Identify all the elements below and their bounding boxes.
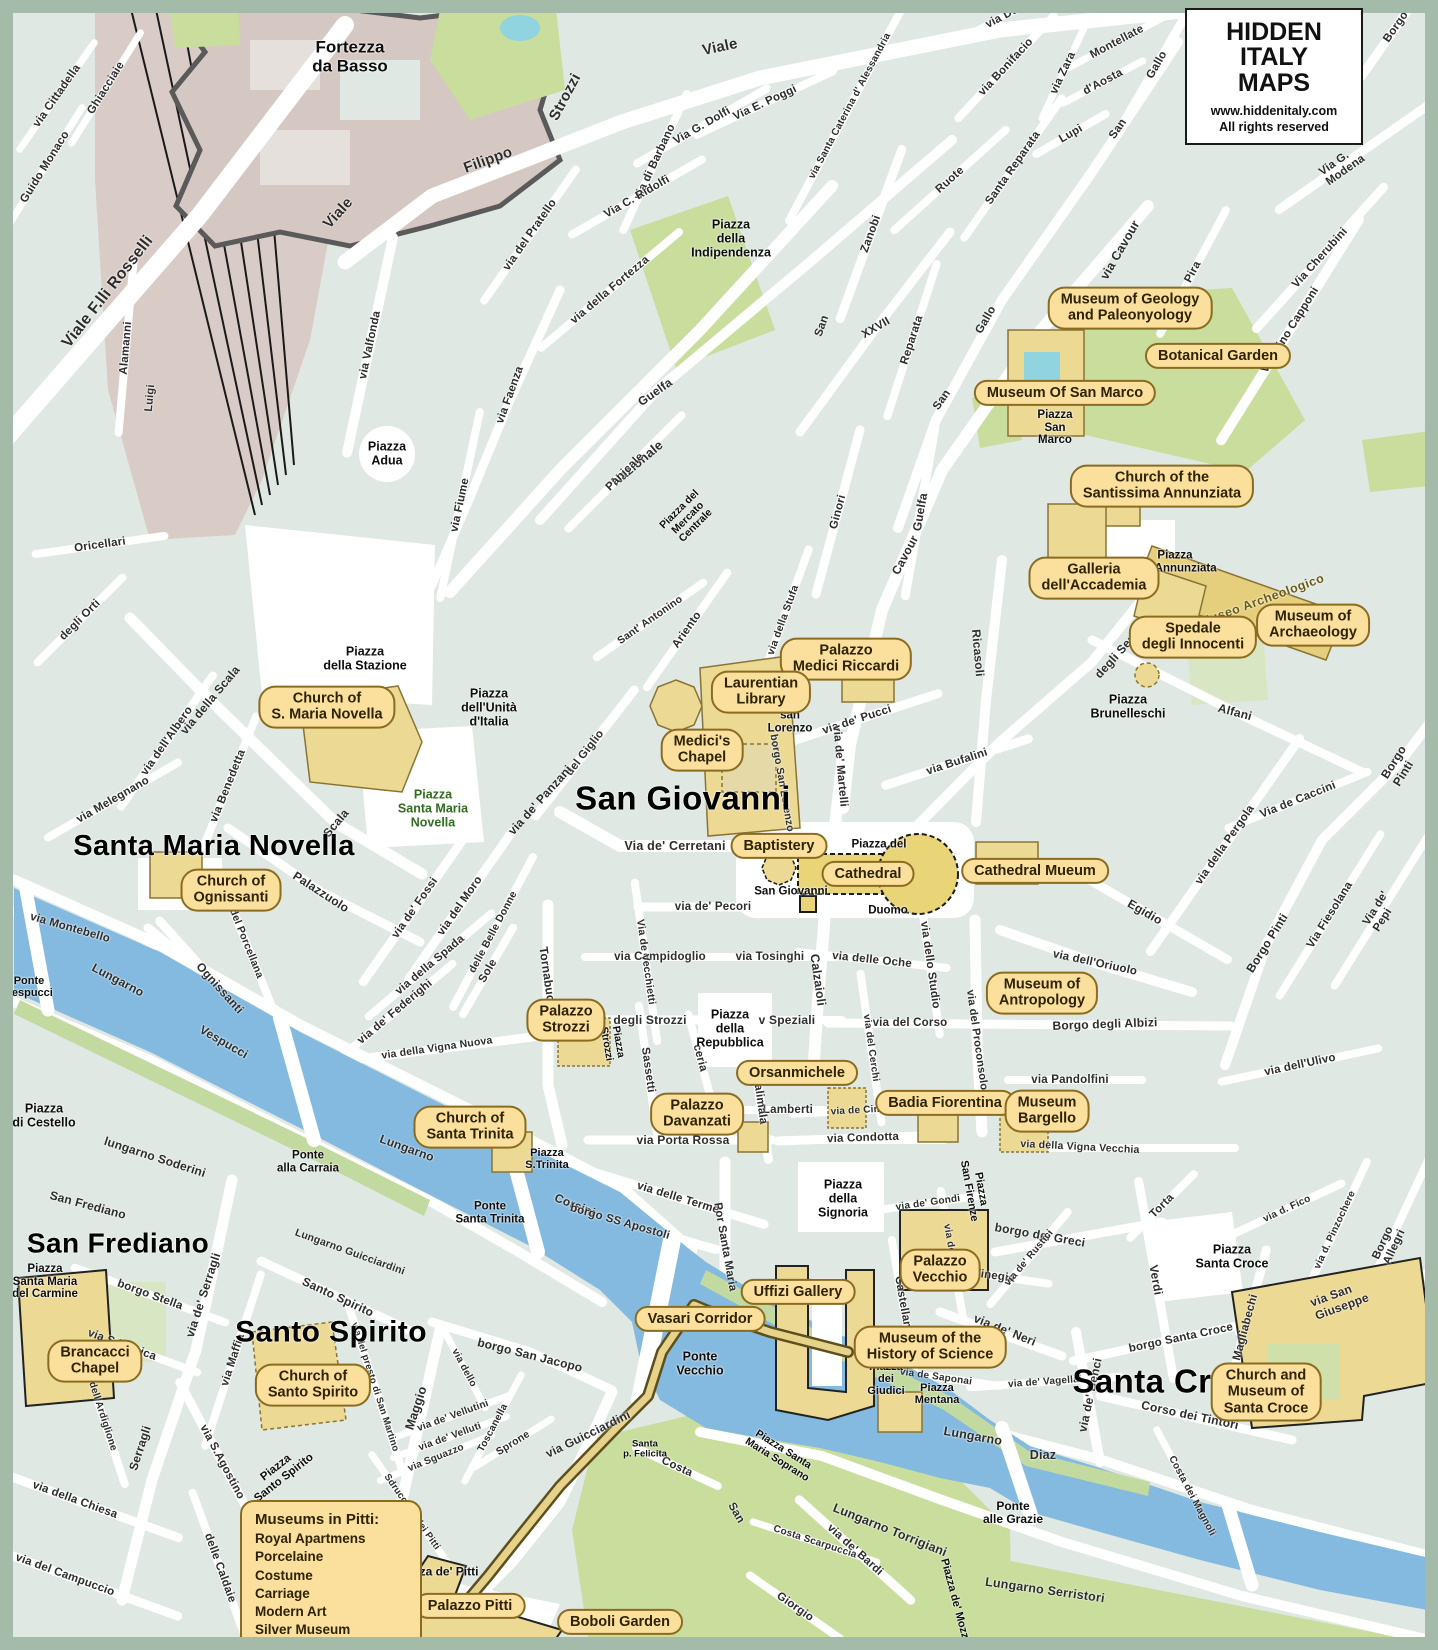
museums-in-pitti-box: Museums in Pitti: Royal ApartmensPorcela… (240, 1500, 422, 1650)
poi-badge: Badia Fiorentina (875, 1090, 1015, 1116)
street-label: via de' Vellutini (416, 1398, 490, 1434)
place-label: Piazza Santa Maria Soprano (743, 1426, 817, 1484)
street-label: Montellate (1088, 23, 1146, 61)
street-label: Via Fiesolana (1305, 880, 1355, 951)
street-label: San (931, 388, 953, 413)
street-label: Costa (660, 1455, 695, 1480)
street-label: Lamberti (763, 1104, 813, 1116)
street-label: San (725, 1501, 746, 1526)
street-label: Viale F.lli Rosselli (59, 232, 158, 351)
street-label: via Campidoglio (614, 951, 706, 963)
place-label: Santa p. Felicita (623, 1440, 667, 1461)
street-label: Palazzuolo (290, 869, 351, 916)
street-label: via della Pergola (1193, 803, 1257, 887)
street-label: via dello (449, 1347, 478, 1389)
place-label: Piazza San Marco (1037, 409, 1072, 447)
street-label: via della Fortezza (568, 254, 651, 327)
poi-badge: Museum of the History of Science (854, 1326, 1007, 1369)
place-label: Piazza Santa Maria del Carmine (12, 1263, 78, 1301)
museums-box-item: Palatina Gallery (255, 1640, 407, 1650)
museums-box-item: Porcelaine (255, 1548, 407, 1566)
street-label: via Bonifacio (976, 36, 1035, 98)
street-label: Borgo degli Albizi (1052, 1015, 1158, 1033)
map-title-line2: MAPS (1193, 70, 1355, 98)
museums-box-item: Carriage (255, 1585, 407, 1603)
street-label: Alfani (1217, 701, 1254, 723)
street-label: Filippo (461, 143, 514, 176)
street-label: via Fiume (448, 477, 471, 533)
street-label: via dell'Albero (139, 704, 195, 777)
street-label: Lungarno (90, 960, 147, 999)
place-label: Ponte alla Carraia (277, 1149, 339, 1174)
street-label: Scala (320, 806, 352, 840)
street-label: Pira (1182, 259, 1203, 285)
street-label: San (813, 314, 832, 338)
street-label: Borgo Pinti (1243, 911, 1290, 975)
place-label: Piazza de' Mozzi (938, 1557, 972, 1642)
street-label: via Montebello (29, 911, 112, 945)
street-label: Viale (701, 35, 740, 59)
poi-badge: Church of Santo Spirito (255, 1364, 371, 1407)
street-label: via del Pratello (501, 197, 559, 273)
street-label: Borgo (1381, 9, 1411, 44)
street-label: Diaz (1030, 1448, 1057, 1462)
street-label: via de' Serragli (183, 1251, 224, 1339)
street-label: Santa Reparata (983, 129, 1042, 207)
district-label: Santo Spirito (235, 1316, 427, 1348)
place-label: Piazza della Repubblica (696, 1008, 763, 1049)
street-label: Via de' Pepi (1361, 876, 1409, 934)
street-label: via de' Federighi (355, 977, 434, 1046)
street-label: via delle Oche (832, 950, 913, 970)
street-label: borgo San Lorenzo (767, 733, 796, 833)
street-label: via Benedetta (208, 748, 248, 824)
street-label: Borgo Allegri (1370, 1214, 1412, 1267)
street-label: Zanobi (859, 214, 884, 255)
street-label: via della Scala (177, 663, 242, 737)
poi-badge: Museum of Geology and Paleonyology (1048, 287, 1213, 330)
poi-badge: Museum Bargello (1005, 1090, 1090, 1133)
poi-badge: Vasari Corridor (635, 1306, 766, 1332)
street-label: via di Barbano (632, 122, 678, 201)
place-label: Piazza San Firenze (958, 1157, 993, 1222)
street-label: Panicale (604, 451, 647, 494)
poi-badge: Palazzo Strozzi (526, 999, 605, 1042)
street-label: Viale (320, 194, 357, 232)
street-label: via Guicciardini (543, 1407, 632, 1460)
street-label: Ginori (828, 494, 849, 531)
street-label: via Maffia (219, 1332, 247, 1387)
street-label: Lungarno Torrigiani (831, 1501, 949, 1560)
map-title-line1: HIDDEN ITALY (1193, 20, 1355, 70)
place-label: Piazza della Indipendenza (691, 218, 771, 259)
florence-map: Viale F.lli Rossellivia CittadellaGhiacc… (0, 0, 1438, 1650)
place-label: San Giovanni (754, 886, 828, 899)
street-label: via dello Studio (918, 921, 942, 1010)
street-label: borgo SS Apostoli (569, 1202, 672, 1242)
street-label: Via de Caccini (1258, 779, 1337, 820)
place-label: Piazza Adua (368, 440, 406, 468)
title-box: HIDDEN ITALY MAPS www.hiddenitaly.com Al… (1185, 8, 1363, 145)
street-label: via de' Martelli (830, 725, 849, 808)
poi-badge: Palazzo Davanzati (650, 1093, 744, 1136)
street-label: via Faenza (494, 365, 526, 426)
street-label: Maggio (402, 1384, 429, 1431)
street-label: Corsini (553, 1191, 598, 1220)
street-label: Lungarno (943, 1424, 1004, 1448)
street-label: Toscanella (476, 1402, 511, 1454)
street-label: borgo Stella (116, 1278, 185, 1313)
poi-badge: Orsanmichele (736, 1060, 858, 1086)
street-label: borgo dei Greci (994, 1220, 1087, 1250)
street-label: via de' Benci (1075, 1357, 1104, 1434)
street-label: XXVII (860, 315, 892, 341)
map-rights: All rights reserved (1193, 120, 1355, 135)
street-label: borgo San Jacopo (476, 1335, 584, 1375)
street-label: Nazionale (608, 437, 666, 489)
place-label: Piazza Santa Maria Novella (398, 788, 468, 829)
street-label: Luigi (143, 384, 157, 412)
district-label: San Giovanni (575, 782, 791, 817)
street-label: via Pandolfini (1031, 1074, 1109, 1086)
street-label: delle Caldaie (202, 1532, 238, 1605)
street-label: Guelfa (910, 492, 930, 532)
museums-box-item: Royal Apartmens (255, 1530, 407, 1548)
street-label: via d. Fico (1262, 1193, 1313, 1225)
street-label: Via C. Ridolfi (602, 173, 672, 220)
place-label: Ponte Santa Trinita (455, 1200, 524, 1225)
street-label: Via de' Cerretani (624, 839, 725, 853)
poi-badge: Church of S. Maria Novella (258, 686, 395, 729)
street-label: Alamanni (118, 321, 135, 375)
poi-badge: Museum Of San Marco (974, 380, 1156, 406)
street-label: via de' Gondi (895, 1193, 961, 1213)
poi-badge: Museum of Archaeology (1256, 604, 1370, 647)
poi-badge: Galleria dell'Accademia (1029, 557, 1160, 600)
street-label: via della Vigna Vecchia (1020, 1138, 1140, 1156)
street-label: delle Belle Donne (466, 889, 519, 975)
street-label: Gallo (973, 304, 998, 336)
street-label: via del Corso (873, 1017, 948, 1029)
street-label: Guido Monaco (18, 129, 72, 205)
street-label: via Zara (1048, 50, 1078, 96)
poi-badge: Medici's Chapel (661, 729, 744, 772)
street-label: via Tosinghi (736, 951, 805, 963)
street-label: Lungarno Serristori (984, 1575, 1105, 1606)
street-label: degli Orti (57, 597, 103, 643)
street-label: via San Giuseppe (1308, 1267, 1397, 1322)
place-label: Piazza S.Trinita (525, 1147, 568, 1171)
museums-box-items: Royal ApartmensPorcelaineCostumeCarriage… (255, 1530, 407, 1650)
museums-box-item: Costume (255, 1567, 407, 1585)
street-label: via de' Pucci (821, 703, 893, 737)
street-label: Cavour (889, 533, 921, 577)
place-label: Piazza dell'Unità d'Italia (461, 687, 517, 728)
street-label: ceria (691, 1043, 710, 1073)
street-label: via de' Vagellai (1008, 1374, 1083, 1390)
street-label: Costa dei Magnoli (1166, 1454, 1217, 1538)
street-label: via Duca (984, 0, 1033, 31)
street-label: Costa Scarpuccia (772, 1523, 858, 1560)
poi-badge: Palazzo Pitti (415, 1593, 526, 1619)
street-label: via del Proconsolo (964, 989, 990, 1091)
street-label: via Condotta (827, 1131, 899, 1146)
street-label: Oricellari (73, 535, 126, 554)
poi-badge: Uffizi Gallery (741, 1279, 856, 1305)
street-label: via de' Rustici (1002, 1228, 1055, 1289)
poi-badge: Brancacci Chapel (47, 1340, 142, 1383)
street-label: del Giglio (564, 728, 607, 778)
street-label: Reparata (898, 314, 925, 366)
street-label: via Cavour (1097, 218, 1142, 282)
street-label: borgo Santa Croce (1128, 1321, 1234, 1355)
place-label: Piazza di Cestello (12, 1102, 75, 1130)
street-label: Borgo Pinti (1378, 741, 1422, 788)
street-label: via della Vigna Nuova (381, 1034, 494, 1061)
street-label: via de' Velluti (417, 1421, 483, 1454)
place-label: Ponte alle Grazie (983, 1500, 1043, 1526)
map-url: www.hiddenitaly.com (1193, 102, 1355, 121)
street-label: Ariento (670, 609, 704, 650)
place-label: Piazza della Signoria (818, 1178, 868, 1219)
street-label: Egidio (1125, 896, 1165, 927)
museums-box-title: Museums in Pitti: (255, 1510, 407, 1530)
district-label: Santa Maria Novella (73, 831, 355, 861)
street-label: Gallo (1144, 49, 1169, 81)
street-label: Por Santa Maria (711, 1202, 738, 1293)
street-label: v Speziali (759, 1013, 816, 1027)
street-label: via de' Pecori (675, 901, 752, 913)
museums-box-item: Modern Art (255, 1603, 407, 1621)
street-label: Via Cherubini (1290, 226, 1350, 291)
street-label: Ricasoli (969, 629, 987, 678)
street-label: via del Cerchi (861, 1014, 881, 1083)
street-label: Calzaioli (807, 953, 828, 1007)
street-label: Guelfa (635, 375, 675, 409)
place-label: Ponte Vespucci (5, 975, 53, 999)
place-label: Duomo (868, 905, 908, 918)
street-label: Via E. Poggi (731, 83, 798, 123)
place-label: Piazza Santo Spirito (244, 1441, 316, 1505)
street-label: via delle Terme (635, 1180, 720, 1216)
poi-badge: Boboli Garden (557, 1609, 683, 1635)
street-label: Sole (477, 957, 500, 985)
place-label: Ponte Vecchio (676, 1350, 723, 1378)
street-label: via Sguazzo (406, 1442, 465, 1474)
museums-box-item: Silver Museum (255, 1621, 407, 1639)
place-label: Piazza Mentana (915, 1382, 960, 1406)
street-label: Sprone (494, 1428, 532, 1458)
poi-badge: Church and Museum of Santa Croce (1211, 1362, 1322, 1421)
street-label: via de' Fossi (390, 875, 441, 940)
street-label: Sant' Antonino (615, 593, 685, 647)
street-label: lungarno Soderini (102, 1134, 207, 1180)
street-label: via Cittadella (31, 62, 83, 129)
street-label: Serragli (126, 1424, 154, 1472)
poi-badge: Laurentian Library (711, 671, 811, 714)
district-label: San Frediano (27, 1228, 209, 1257)
poi-badge: Cathedral (822, 861, 915, 887)
street-label: via S.Agostino (197, 1423, 246, 1502)
street-label: San (1107, 117, 1129, 142)
street-label: Santo Spirito (300, 1274, 376, 1319)
place-label: Piazza del Mercato Centrale (658, 488, 718, 548)
street-label: d'Aosta (1081, 67, 1125, 98)
label-layer: Viale F.lli Rossellivia CittadellaGhiacc… (0, 0, 1438, 1650)
poi-badge: Church of the Santissima Annunziata (1070, 465, 1254, 508)
street-label: via Santa Caterina d' Alessandria (807, 31, 894, 181)
street-label: via Valfonda (357, 310, 383, 380)
street-label: via d. Pinzochere (1312, 1189, 1358, 1271)
place-label: Piazza del (852, 839, 907, 852)
street-label: via della Chiesa (31, 1479, 119, 1521)
street-label: via della Spada (393, 933, 467, 998)
place-label: Fortezza da Basso (312, 38, 388, 75)
street-label: Lupi (1057, 123, 1085, 146)
street-label: Strozzi (546, 71, 585, 124)
street-label: San Frediano (48, 1188, 127, 1222)
street-label: via dell'Ulivo (1263, 1052, 1337, 1079)
street-label: via de' Panzani (505, 762, 575, 837)
street-label: via de Saponai (899, 1366, 973, 1387)
street-label: Giorgio (774, 1590, 816, 1624)
poi-badge: Church of Ognissanti (181, 869, 282, 912)
poi-badge: Baptistery (731, 833, 828, 859)
poi-badge: Museum of Antropology (986, 972, 1098, 1015)
poi-badge: Botanical Garden (1145, 343, 1291, 369)
street-label: Via de Vecchietti (634, 919, 658, 1006)
poi-badge: Palazzo Vecchio (900, 1249, 981, 1292)
street-label: Ognissanti (193, 960, 246, 1017)
street-label: Verdi (1146, 1264, 1165, 1296)
street-label: via del Moro (435, 874, 485, 938)
poi-badge: Cathedral Mueum (961, 858, 1109, 884)
street-label: degli Strozzi (613, 1013, 686, 1027)
street-label: Ghiacciaie (85, 60, 127, 117)
street-label: Sassetti (639, 1047, 657, 1094)
street-label: via de' Bardi (825, 1522, 885, 1578)
place-label: Piazza Brunelleschi (1090, 693, 1165, 721)
place-label: Piazza Santa Croce (1196, 1243, 1269, 1271)
poi-badge: Spedale degli Innocenti (1129, 616, 1257, 659)
poi-badge: Church of Santa Trinita (413, 1106, 526, 1149)
street-label: via Melegnano (75, 774, 152, 825)
street-label: via del Campuccio (14, 1552, 116, 1599)
street-label: Vespucci (197, 1023, 250, 1062)
street-label: Ruote (934, 164, 967, 195)
street-label: Torta (1148, 1192, 1177, 1221)
street-label: via Bufalini (925, 746, 989, 777)
street-label: Via G. Dolfi (671, 105, 732, 147)
street-label: Lungarno Guicciardini (293, 1226, 406, 1277)
place-label: Piazza della Stazione (323, 645, 406, 673)
